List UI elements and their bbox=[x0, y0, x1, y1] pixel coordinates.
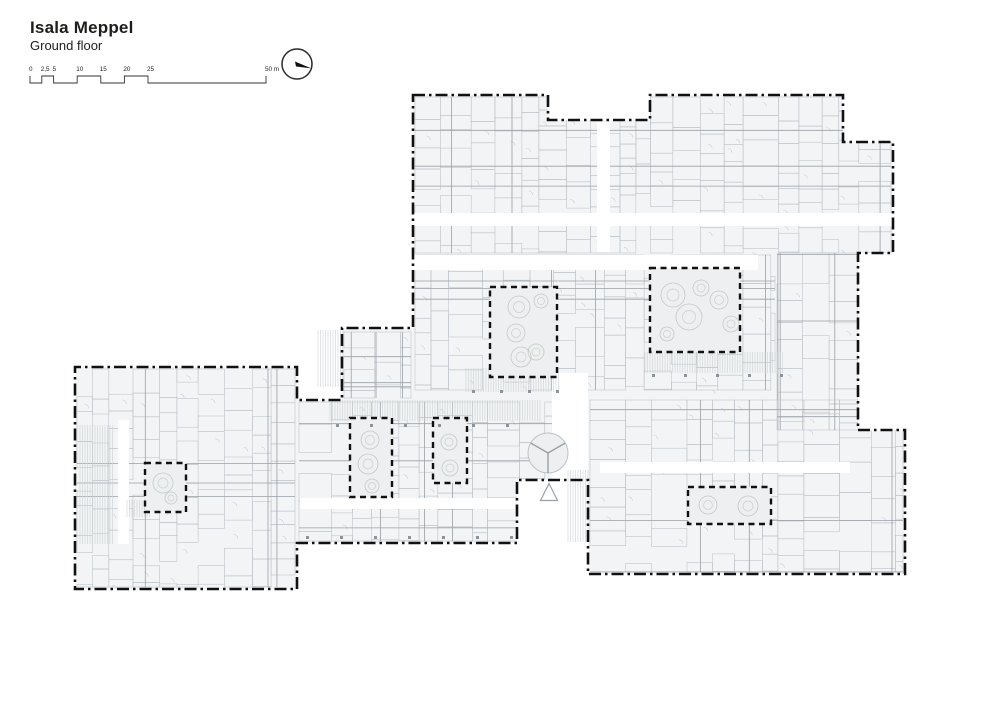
entrance-triangle-icon bbox=[541, 484, 558, 501]
courtyard bbox=[490, 287, 557, 377]
courtyard bbox=[433, 418, 467, 483]
courtyard bbox=[688, 487, 771, 524]
floor-plan-drawing: 02,551015202550 m bbox=[0, 0, 1000, 707]
scale-label: 5 bbox=[53, 66, 57, 73]
scale-label: 25 bbox=[147, 66, 155, 73]
courtyard bbox=[350, 418, 392, 497]
scale-label: 20 bbox=[123, 66, 131, 73]
courtyard bbox=[145, 463, 186, 512]
scale-label: 2,5 bbox=[41, 66, 50, 73]
scale-label: 15 bbox=[100, 66, 108, 73]
drawing-sheet: 02,551015202550 m Isala Meppel Ground fl… bbox=[0, 0, 1000, 707]
drawing-title: Isala Meppel bbox=[30, 18, 134, 38]
courtyard bbox=[650, 268, 740, 352]
scale-label: 50 m bbox=[265, 66, 279, 73]
drawing-subtitle: Ground floor bbox=[30, 38, 102, 53]
scale-bar: 02,551015202550 m bbox=[29, 66, 279, 83]
scale-label: 0 bbox=[29, 66, 33, 73]
scale-label: 10 bbox=[76, 66, 84, 73]
north-arrow-icon bbox=[282, 49, 312, 79]
entrance-symbols bbox=[528, 433, 568, 501]
